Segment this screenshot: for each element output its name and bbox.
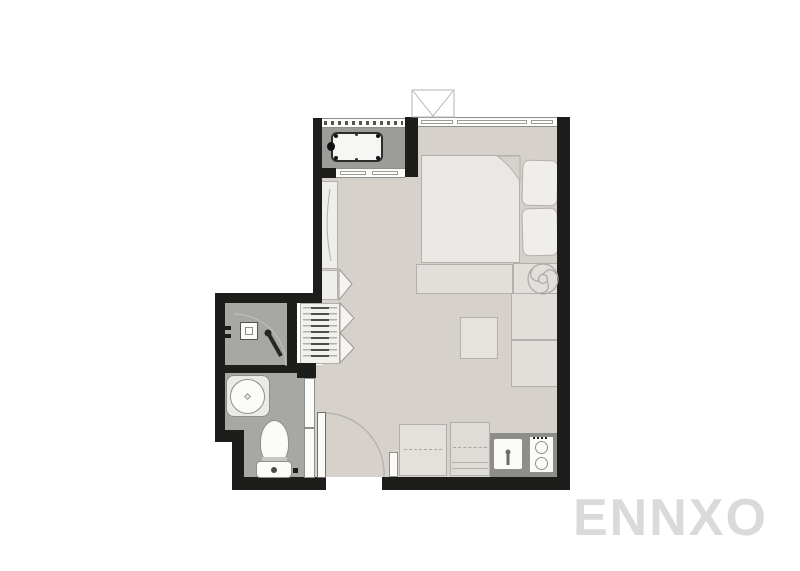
kitchen-sink	[493, 438, 523, 470]
ac-ledge-box	[412, 90, 454, 117]
wall-segment	[232, 430, 244, 490]
bed-mattress	[421, 155, 520, 263]
kitchen-counter-line	[453, 447, 487, 448]
kitchen-counter-drawer-lines	[452, 462, 488, 469]
bathroom-sliding-door-split	[305, 427, 314, 429]
fan-table	[513, 263, 562, 294]
watermark-logo: ENNXO	[573, 488, 793, 548]
wall-segment	[405, 117, 418, 177]
pillow	[521, 160, 558, 207]
wall-segment	[287, 293, 297, 373]
ac-unit-knob	[355, 133, 358, 136]
top-window-pane	[421, 120, 453, 124]
side-console-divider	[512, 339, 561, 341]
balcony-sliding-door-panel	[372, 171, 398, 175]
stool-table	[460, 317, 498, 359]
ac-unit-valve	[327, 142, 335, 151]
stove-controls	[533, 437, 547, 439]
floor-plan-image: ENNXO	[0, 0, 800, 571]
fridge-counter-line	[404, 449, 442, 450]
foot-bench	[416, 264, 513, 294]
wall-segment	[322, 168, 336, 178]
tap-nub	[224, 326, 231, 330]
balcony-sliding-door-panel	[340, 171, 366, 175]
wall-segment	[557, 117, 570, 490]
ac-unit-knob	[376, 156, 380, 160]
pillow	[521, 208, 558, 257]
wall-sink-inner	[245, 327, 253, 335]
wall-segment	[215, 293, 322, 303]
top-window-pane	[531, 120, 553, 124]
wall-segment	[222, 365, 297, 373]
top-window-pane	[457, 120, 527, 124]
closet-cabinet	[321, 270, 338, 300]
toilet-flush-button	[271, 467, 277, 473]
wardrobe-hangers-center	[311, 307, 329, 360]
wall-segment	[313, 118, 322, 303]
stove-burner	[535, 441, 548, 454]
ac-unit-knob	[334, 156, 338, 160]
wall-segment	[297, 363, 316, 378]
floor-drain	[293, 468, 298, 473]
fridge-counter	[399, 424, 447, 476]
ac-unit-knob	[376, 134, 380, 138]
wall-segment	[382, 477, 570, 490]
stove-burner	[535, 457, 548, 470]
ac-unit-knob	[334, 134, 338, 138]
door-side-panel	[389, 452, 398, 477]
closet-counter	[321, 181, 338, 269]
wall-segment	[232, 477, 326, 490]
tap-nub	[224, 334, 231, 338]
ac-unit-knob	[355, 158, 358, 161]
entrance-door-leaf	[317, 412, 326, 478]
louver-vent-slats	[324, 121, 403, 125]
